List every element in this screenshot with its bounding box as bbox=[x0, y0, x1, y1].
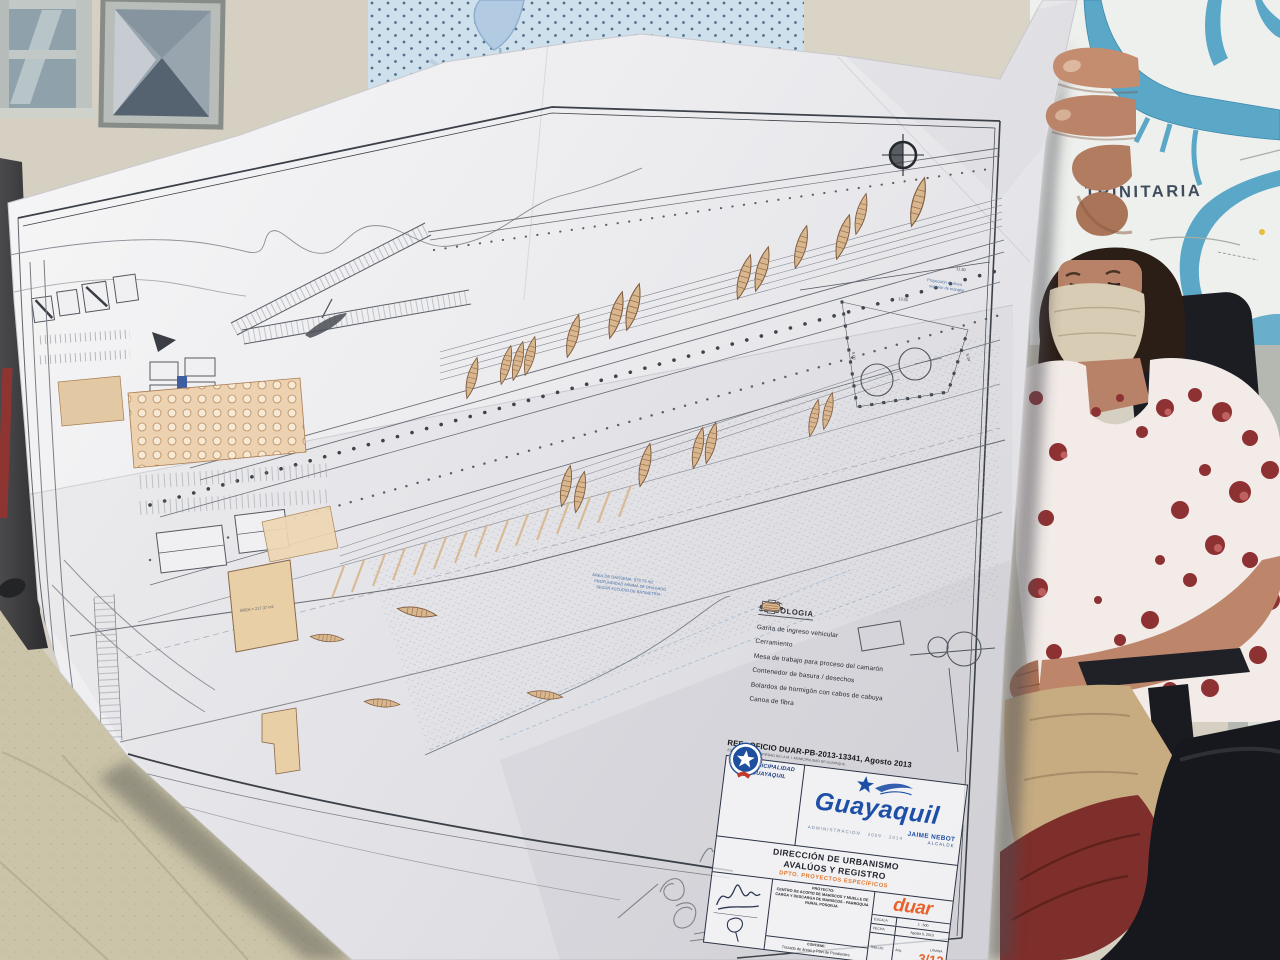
blue-structure bbox=[177, 376, 187, 389]
photo-scene: TRINITARIA bbox=[0, 0, 1280, 960]
legend-label: Garita de ingreso vehicular bbox=[757, 623, 839, 639]
municipal-seal-icon bbox=[723, 738, 768, 785]
legend-label: Contenedor de basura / desechos bbox=[752, 667, 855, 685]
map-poi-dot bbox=[1259, 229, 1265, 235]
window-sill bbox=[0, 108, 96, 118]
legend-label: Cerramiento bbox=[755, 638, 793, 649]
administration-years: 2009 - 2014 bbox=[867, 832, 903, 841]
work-table-grid-area bbox=[128, 378, 306, 468]
mayor-block: JAIME NEBOT ALCALDE bbox=[907, 831, 956, 849]
hand-knuckle bbox=[1076, 192, 1128, 236]
tan-pad bbox=[58, 376, 124, 426]
project-cell: PROYECTO: CENTRO DE ACOPIO DE MARISCOS Y… bbox=[765, 880, 876, 960]
photo-blueprint-presentation: TRINITARIA bbox=[0, 0, 1280, 960]
title-block-table: M. I. MUNICIPALIDAD DE GUAYAQUIL Guayaqu… bbox=[703, 755, 968, 960]
administration-label: ADMINISTRACIÓN bbox=[807, 824, 861, 835]
drawn-label: DIBUJO bbox=[867, 933, 895, 960]
duar-cell: duar ESCALA 1 : 500 FECHA Agosto 5, 2013… bbox=[867, 892, 953, 960]
city-brand: Guayaquil bbox=[813, 787, 941, 831]
administration-line: ADMINISTRACIÓN 2009 - 2014 bbox=[807, 824, 903, 841]
municipality-cell: M. I. MUNICIPALIDAD DE GUAYAQUIL bbox=[717, 756, 805, 845]
signature-scribble bbox=[705, 848, 776, 945]
window bbox=[0, 0, 96, 118]
plan-title-block: REF.: OFICIO DUAR-PB-2013-13341, Agosto … bbox=[703, 738, 974, 960]
signature-cell bbox=[704, 872, 773, 949]
dimension-label: 5.00 bbox=[851, 352, 857, 361]
framed-picture bbox=[101, 0, 223, 127]
fiber-canoe-icon bbox=[758, 598, 785, 616]
